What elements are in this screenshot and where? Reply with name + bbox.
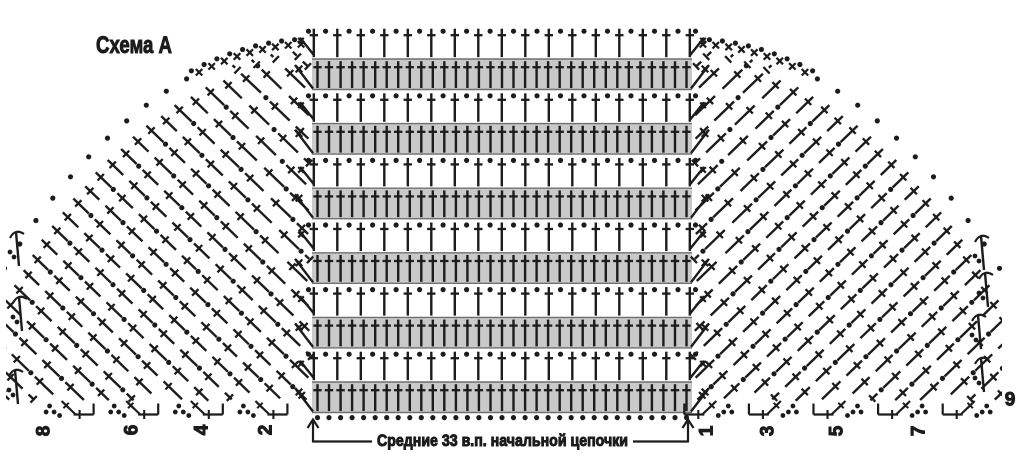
svg-text:4: 4 bbox=[192, 424, 213, 435]
svg-text:8: 8 bbox=[34, 426, 55, 437]
svg-text:6: 6 bbox=[122, 425, 143, 436]
svg-text:7: 7 bbox=[909, 426, 930, 437]
svg-text:Средние 33 в.п. начальной цепо: Средние 33 в.п. начальной цепочки bbox=[377, 432, 628, 450]
svg-text:1: 1 bbox=[697, 425, 718, 436]
svg-text:2: 2 bbox=[256, 425, 277, 436]
svg-text:3: 3 bbox=[758, 426, 779, 437]
svg-text:5: 5 bbox=[827, 425, 848, 436]
svg-text:9: 9 bbox=[1005, 390, 1016, 411]
svg-text:Схема А: Схема А bbox=[96, 32, 172, 59]
